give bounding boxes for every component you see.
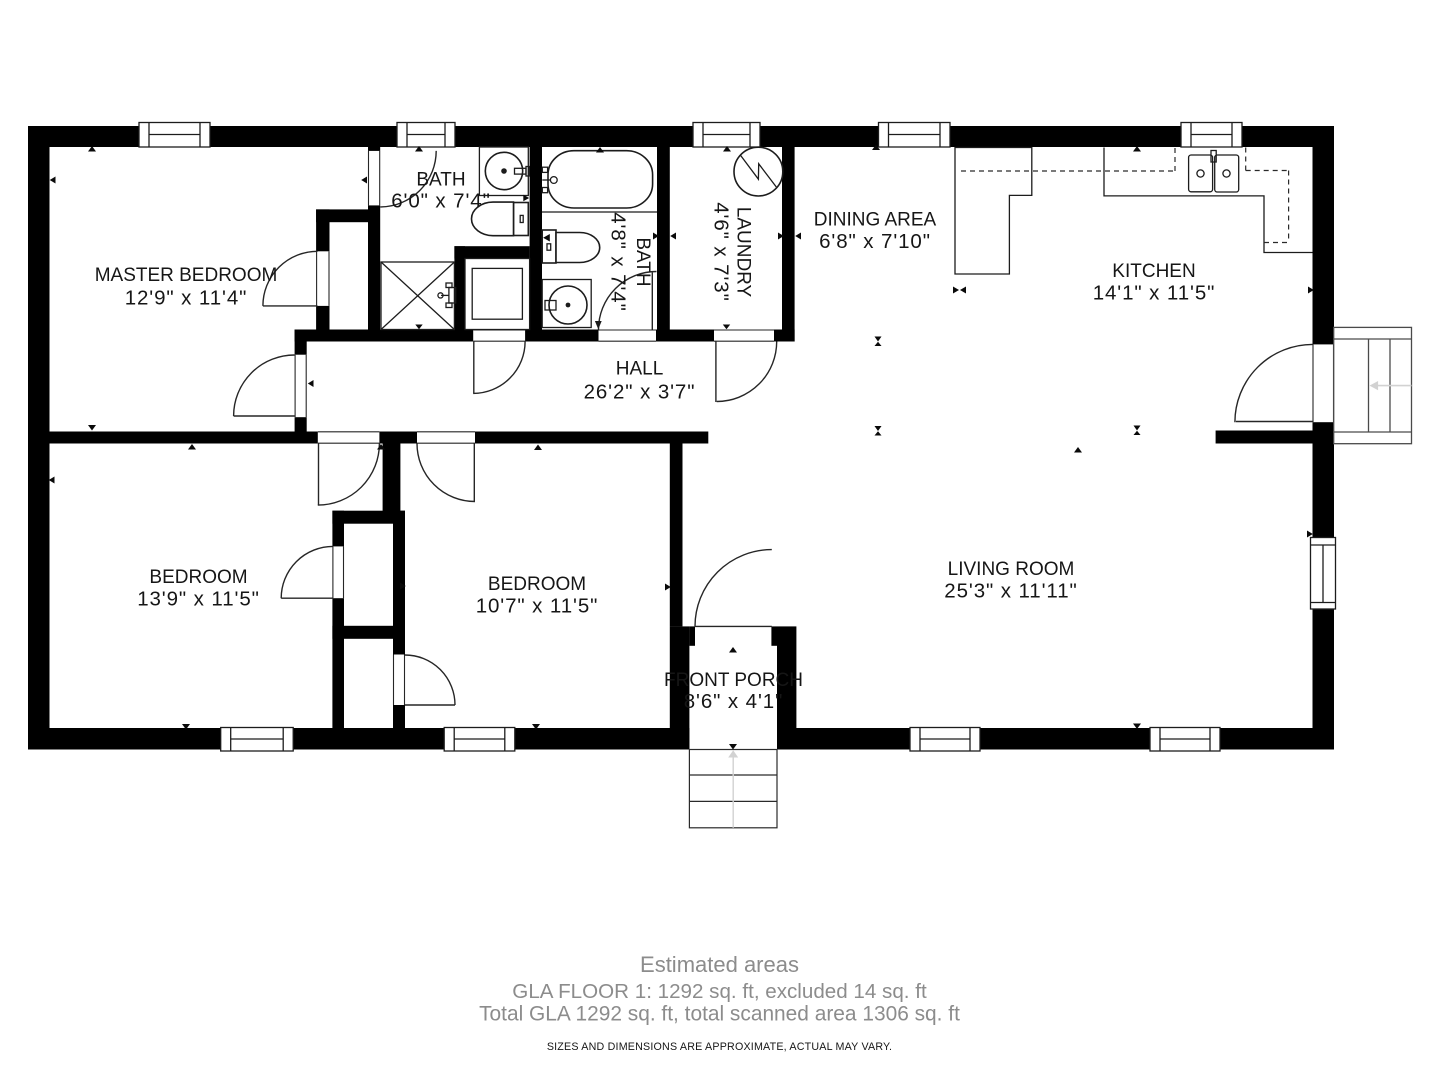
svg-text:BEDROOM: BEDROOM <box>488 574 586 595</box>
svg-text:26'2" x 3'7": 26'2" x 3'7" <box>584 381 696 404</box>
svg-text:6'8" x 7'10": 6'8" x 7'10" <box>819 230 931 253</box>
svg-text:LIVING ROOM: LIVING ROOM <box>948 559 1075 580</box>
svg-text:Total GLA 1292 sq. ft, total s: Total GLA 1292 sq. ft, total scanned are… <box>479 1003 960 1026</box>
svg-text:4'8" x 7'4": 4'8" x 7'4" <box>607 212 630 312</box>
svg-text:FRONT PORCH: FRONT PORCH <box>664 670 803 691</box>
svg-text:GLA FLOOR 1: 1292 sq. ft, excl: GLA FLOOR 1: 1292 sq. ft, excluded 14 sq… <box>512 980 927 1003</box>
svg-text:25'3" x 11'11": 25'3" x 11'11" <box>944 580 1077 603</box>
svg-text:4'6" x 7'3": 4'6" x 7'3" <box>710 202 733 302</box>
svg-text:8'6" x 4'1": 8'6" x 4'1" <box>684 690 784 713</box>
svg-text:MASTER BEDROOM: MASTER BEDROOM <box>95 265 278 286</box>
svg-text:KITCHEN: KITCHEN <box>1112 261 1195 282</box>
svg-text:BATH: BATH <box>632 237 653 286</box>
svg-text:BEDROOM: BEDROOM <box>149 567 247 588</box>
svg-text:DINING AREA: DINING AREA <box>814 210 937 231</box>
svg-text:10'7" x 11'5": 10'7" x 11'5" <box>476 595 599 618</box>
svg-text:14'1" x 11'5": 14'1" x 11'5" <box>1093 282 1216 305</box>
svg-text:HALL: HALL <box>616 359 664 380</box>
svg-text:6'0" x 7'4": 6'0" x 7'4" <box>391 190 491 213</box>
svg-text:SIZES AND DIMENSIONS ARE APPRO: SIZES AND DIMENSIONS ARE APPROXIMATE, AC… <box>547 1041 892 1053</box>
svg-text:Estimated areas: Estimated areas <box>640 952 799 977</box>
svg-text:13'9" x 11'5": 13'9" x 11'5" <box>137 588 260 611</box>
svg-text:BATH: BATH <box>416 170 465 191</box>
svg-text:LAUNDRY: LAUNDRY <box>733 207 754 298</box>
svg-text:12'9" x 11'4": 12'9" x 11'4" <box>125 287 248 310</box>
